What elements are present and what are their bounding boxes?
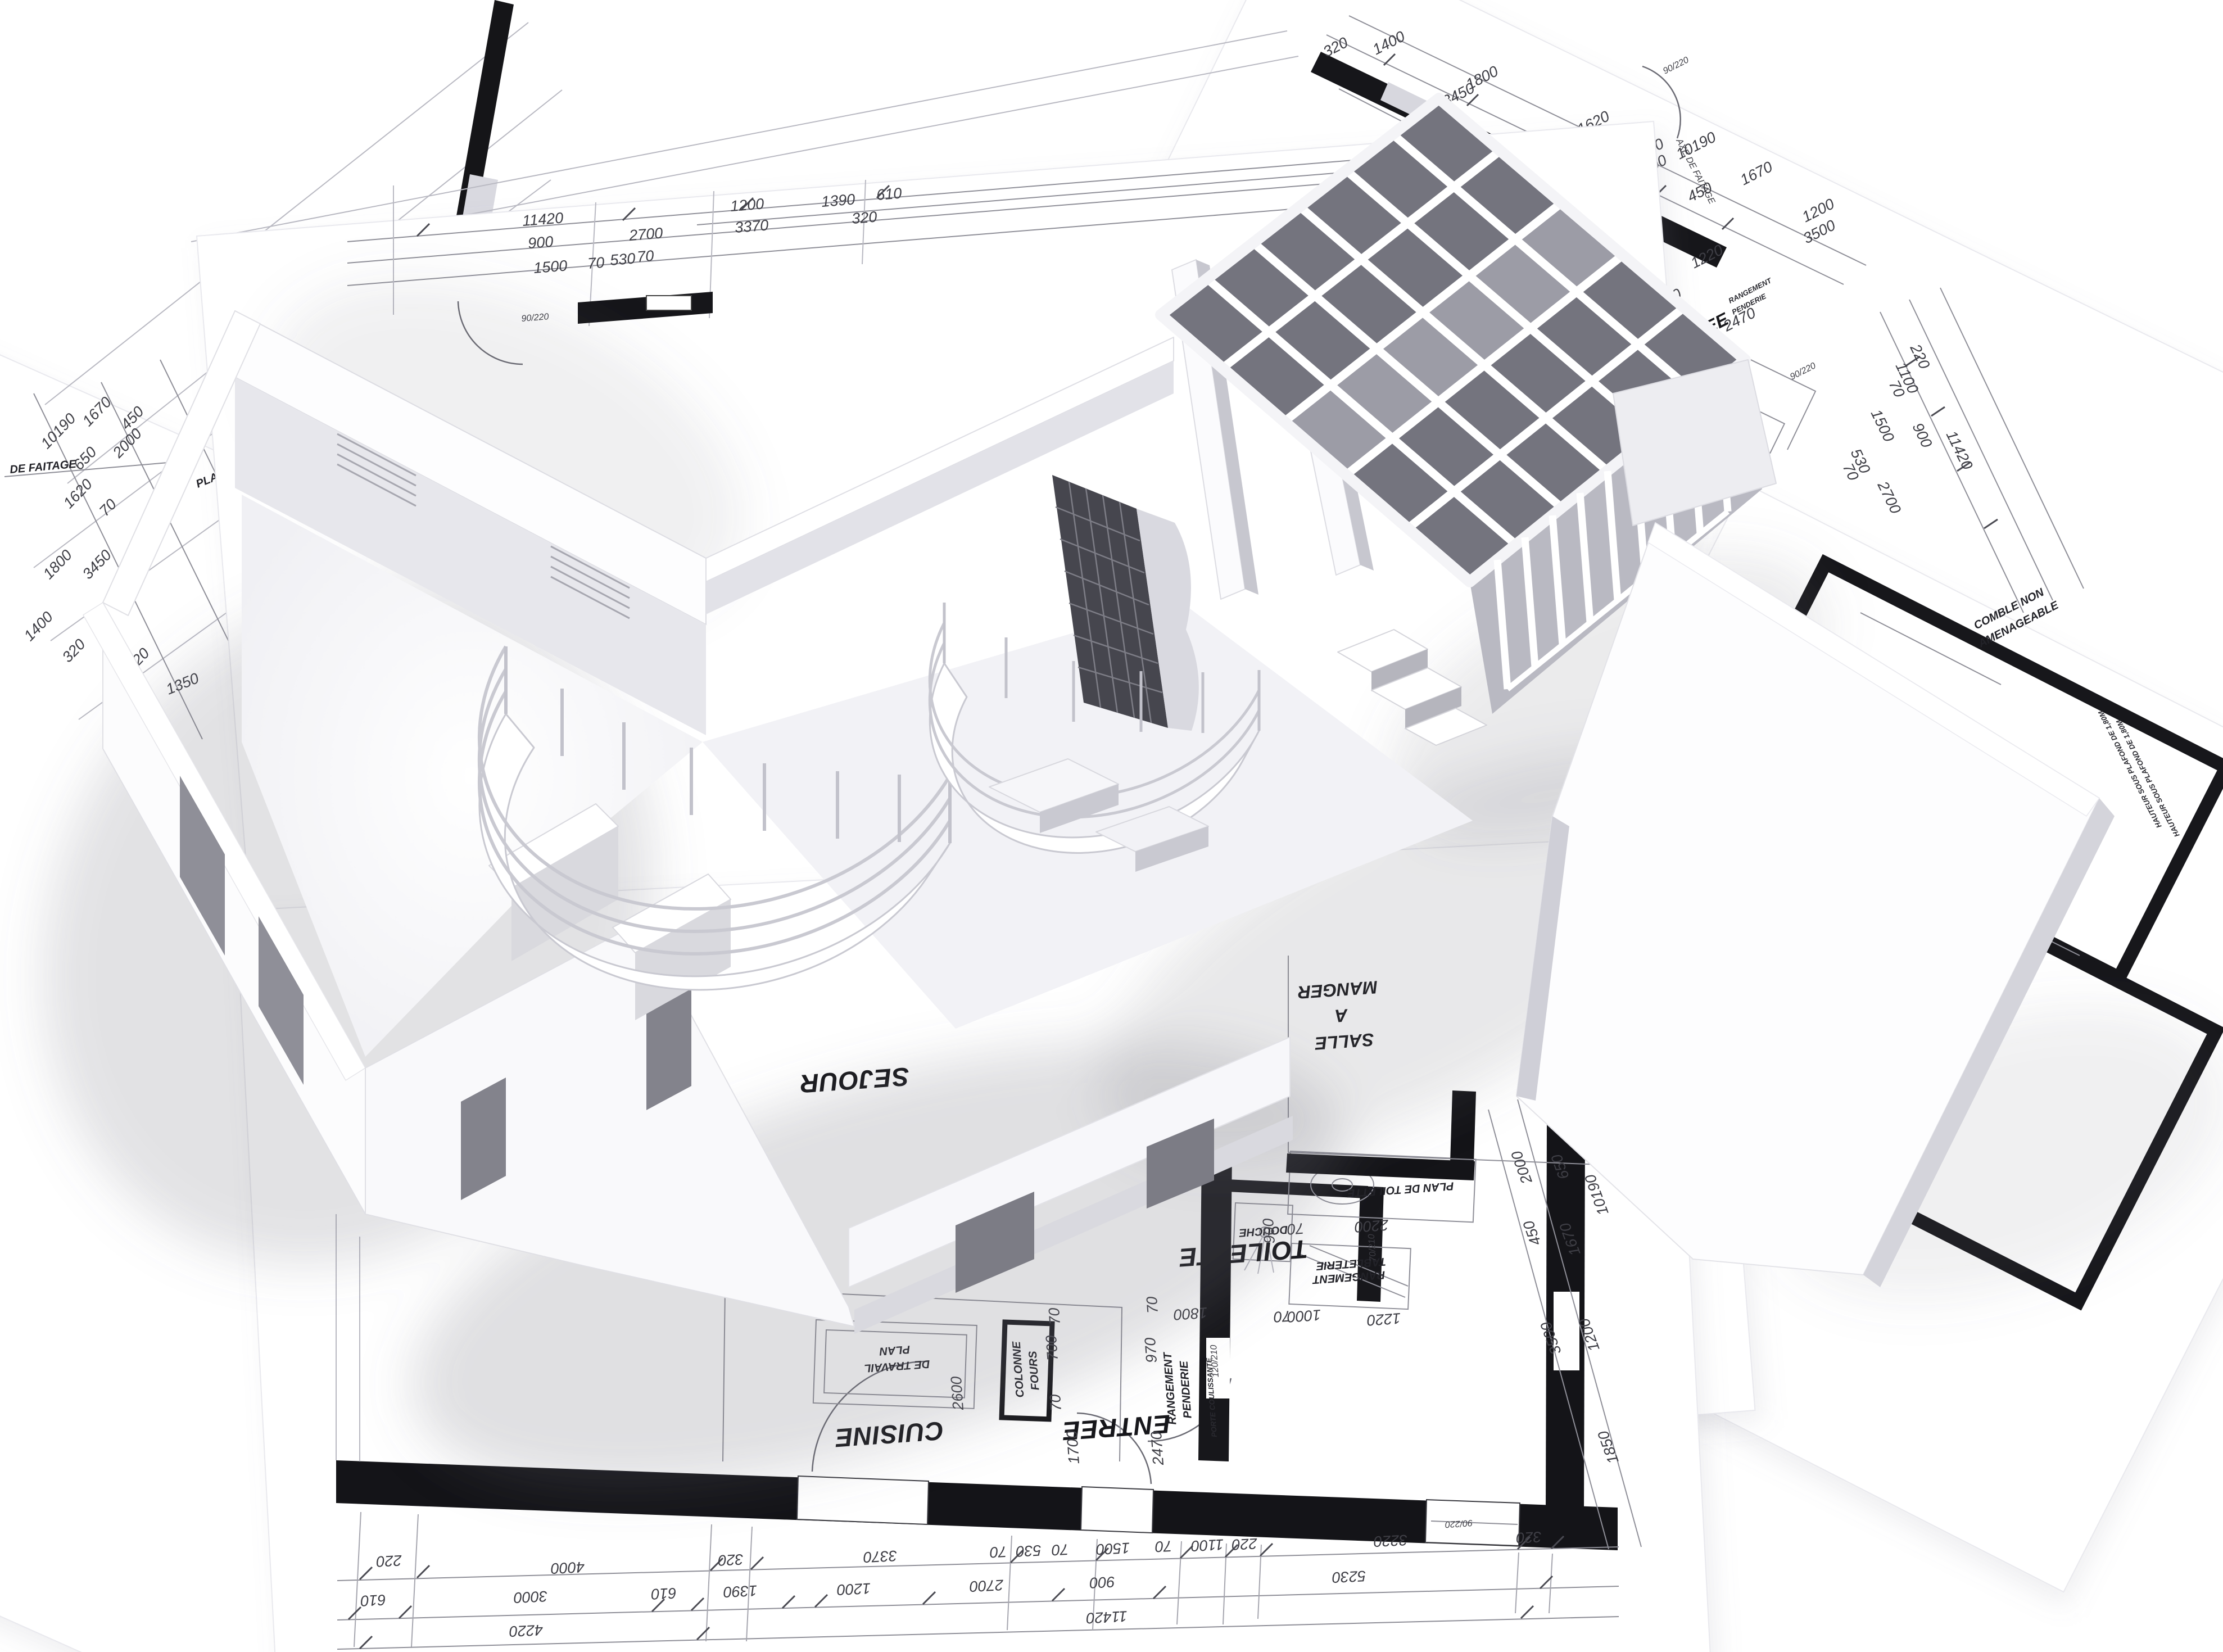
- dim-label: 70: [1047, 1394, 1065, 1412]
- dim-label: 2700: [628, 224, 663, 244]
- door-code: 90/220: [1445, 1518, 1473, 1529]
- dim-label: 900: [1089, 1573, 1116, 1591]
- dim-label: 3220: [1373, 1531, 1408, 1550]
- dim-label: 70: [1154, 1537, 1172, 1555]
- dim-label: 1500: [1095, 1539, 1130, 1558]
- dim-label: 530: [609, 250, 636, 269]
- dim-label: 3370: [863, 1547, 898, 1565]
- dim-label: 220: [376, 1552, 403, 1570]
- dim-label: 1200: [836, 1579, 871, 1598]
- dim-label: 70: [636, 247, 654, 265]
- dim-label: 2200: [1354, 1216, 1389, 1235]
- dim-label: 900: [527, 233, 554, 252]
- dim-label: 1390: [723, 1582, 758, 1600]
- dim-label: 5230: [1332, 1567, 1366, 1586]
- dim-label: 3370: [734, 216, 769, 236]
- dim-label: 70: [1273, 1307, 1291, 1325]
- dim-label: 11420: [522, 209, 564, 229]
- dim-label: 530: [1016, 1542, 1042, 1560]
- dim-label: 1220: [1366, 1310, 1401, 1329]
- dim-label: 2470: [1148, 1431, 1167, 1467]
- dim-label: 11420: [1086, 1608, 1128, 1627]
- dim-label: 320: [718, 1551, 744, 1569]
- dim-label: 610: [360, 1591, 387, 1609]
- dim-label: 1000: [1287, 1306, 1321, 1325]
- dim-label: 70: [1051, 1541, 1069, 1559]
- dim-label: 1200: [730, 195, 764, 215]
- dim-label: 610: [651, 1585, 677, 1603]
- dim-label: 320: [1516, 1528, 1542, 1546]
- dim-label: 4220: [509, 1621, 544, 1640]
- dim-label: 70: [587, 254, 605, 272]
- dim-label: 1500: [533, 257, 568, 277]
- dim-label: 3000: [513, 1587, 548, 1606]
- dim-label: 1100: [1190, 1536, 1224, 1554]
- dim-label: 1390: [821, 191, 855, 210]
- architectural-render: DE FAITAGE PLAN D 10190 1670 650 2000 45…: [0, 0, 2223, 1652]
- dim-label: 610: [876, 185, 902, 203]
- dim-label: 320: [851, 209, 877, 227]
- dim-label: 70: [989, 1543, 1007, 1561]
- dim-label: 4000: [550, 1558, 585, 1577]
- dim-label: 220: [1232, 1535, 1258, 1553]
- door-code: 70/210: [1367, 1234, 1378, 1262]
- dim-label: 2700: [969, 1576, 1004, 1595]
- dim-label: 1700: [1063, 1430, 1083, 1465]
